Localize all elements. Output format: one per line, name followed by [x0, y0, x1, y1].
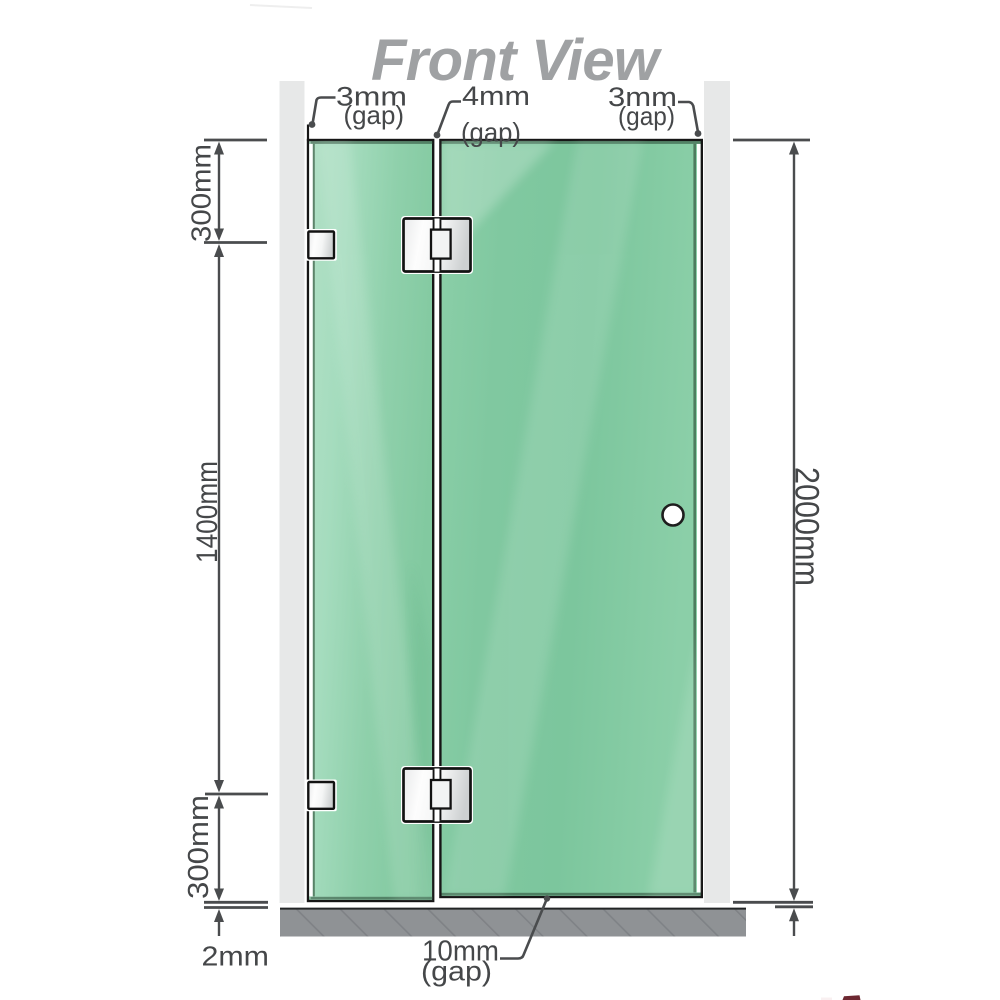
svg-text:2mm: 2mm [202, 941, 270, 972]
svg-text:(gap): (gap) [344, 100, 405, 130]
svg-text:2000mm: 2000mm [788, 467, 826, 586]
svg-text:1400mm: 1400mm [191, 461, 224, 563]
svg-text:(gap): (gap) [618, 101, 675, 131]
svg-text:(gap): (gap) [421, 956, 492, 987]
svg-text:300mm: 300mm [183, 795, 215, 899]
svg-text:(gap): (gap) [461, 118, 521, 148]
svg-text:300mm: 300mm [186, 144, 217, 242]
svg-text:4mm: 4mm [462, 81, 530, 111]
